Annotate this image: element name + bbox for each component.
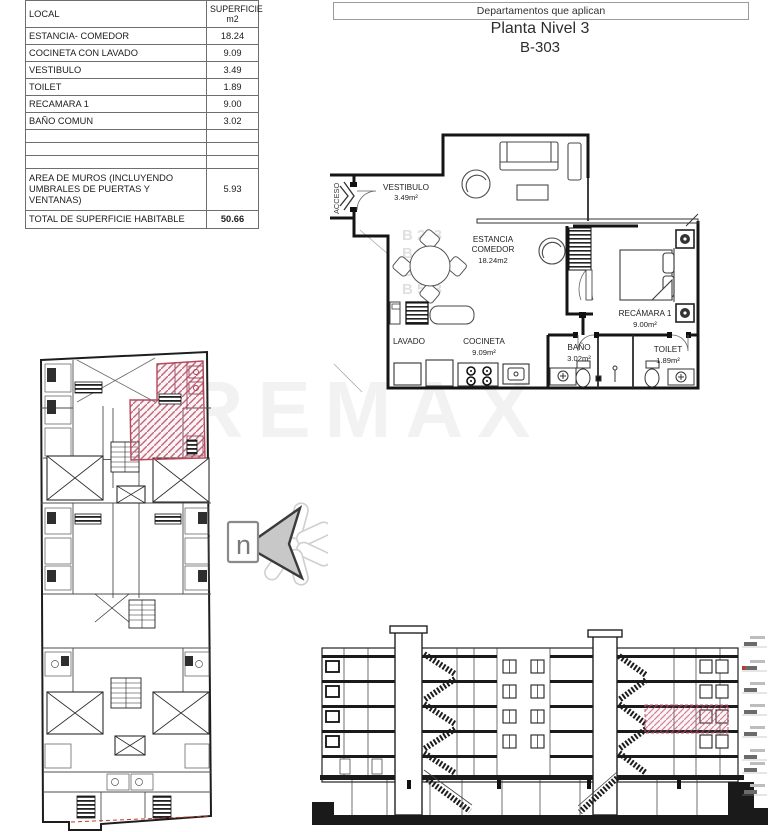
- table-row: BAÑO COMUN3.02: [26, 113, 259, 130]
- stairs: [569, 228, 592, 300]
- table-row: ESTANCIA- COMEDOR18.24: [26, 28, 259, 45]
- kitchen-counter: [394, 360, 529, 386]
- toilet-label: TOILET: [654, 345, 683, 354]
- col-local: LOCAL: [26, 1, 207, 28]
- bathroom-fixtures: [550, 361, 617, 387]
- estancia-area: 18.24m2: [478, 256, 508, 265]
- armchair: [462, 170, 490, 198]
- cocineta-label: COCINETA: [463, 337, 505, 346]
- highlighted-level: [645, 705, 728, 733]
- table-row: VESTIBULO3.49: [26, 62, 259, 79]
- estancia-label-2: COMEDOR: [472, 245, 515, 254]
- bano-label: BAÑO: [567, 342, 590, 352]
- sofa: [500, 142, 558, 170]
- unit-title: B-303: [333, 39, 747, 56]
- north-letter: n: [236, 530, 251, 560]
- table-row-empty: [26, 130, 259, 143]
- unit-floorplan: B 203 B 303 B 403 B 503: [330, 118, 710, 396]
- nightstand: [676, 230, 694, 322]
- table-row: COCINETA CON LAVADO9.09: [26, 45, 259, 62]
- plan-sheet: REMAX LOCAL SUPERFICIE m2 ESTANCIA- COME…: [0, 0, 768, 832]
- coffee-table: [517, 185, 548, 200]
- stove: [467, 367, 491, 385]
- col-superficie: SUPERFICIE m2: [207, 1, 259, 28]
- applies-box: Departamentos que aplican: [333, 2, 749, 20]
- north-arrow: n: [218, 496, 328, 592]
- vestibulo-area: 3.49m²: [394, 193, 418, 202]
- table-row-empty: [26, 143, 259, 156]
- lavado-label: LAVADO: [393, 337, 425, 346]
- key-plan: [35, 348, 225, 832]
- recamara-area: 9.00m²: [633, 320, 657, 329]
- table-row-empty: [26, 156, 259, 169]
- recamara-label: RECÁMARA 1: [619, 308, 672, 318]
- building-section: [312, 612, 768, 832]
- bed: [620, 248, 674, 302]
- areas-table: LOCAL SUPERFICIE m2 ESTANCIA- COMEDOR18.…: [25, 0, 259, 229]
- table-row: RECAMARA 19.00: [26, 96, 259, 113]
- washer: [390, 302, 474, 324]
- table-row: TOILET1.89: [26, 79, 259, 96]
- toilet-area: 1.89m²: [656, 356, 680, 365]
- console-table: [568, 143, 581, 180]
- level-markers: [742, 636, 767, 795]
- cocineta-area: 9.09m²: [472, 348, 496, 357]
- table-row-muros: AREA DE MUROS (INCLUYENDO UMBRALES DE PU…: [26, 169, 259, 211]
- bano-area: 3.02m²: [567, 354, 591, 363]
- acceso-label: ACCESO: [332, 183, 341, 214]
- table-header: LOCAL SUPERFICIE m2: [26, 1, 259, 28]
- kitchen-sink: [508, 368, 524, 380]
- table-row-total: TOTAL DE SUPERFICIE HABITABLE50.66: [26, 211, 259, 229]
- armchair-2: [539, 238, 565, 264]
- page-title: Planta Nivel 3: [333, 20, 747, 38]
- vestibulo-label: VESTIBULO: [383, 183, 429, 192]
- reference-lines: [334, 230, 388, 392]
- applies-label: Departamentos que aplican: [477, 5, 605, 17]
- estancia-label-1: ESTANCIA: [473, 235, 514, 244]
